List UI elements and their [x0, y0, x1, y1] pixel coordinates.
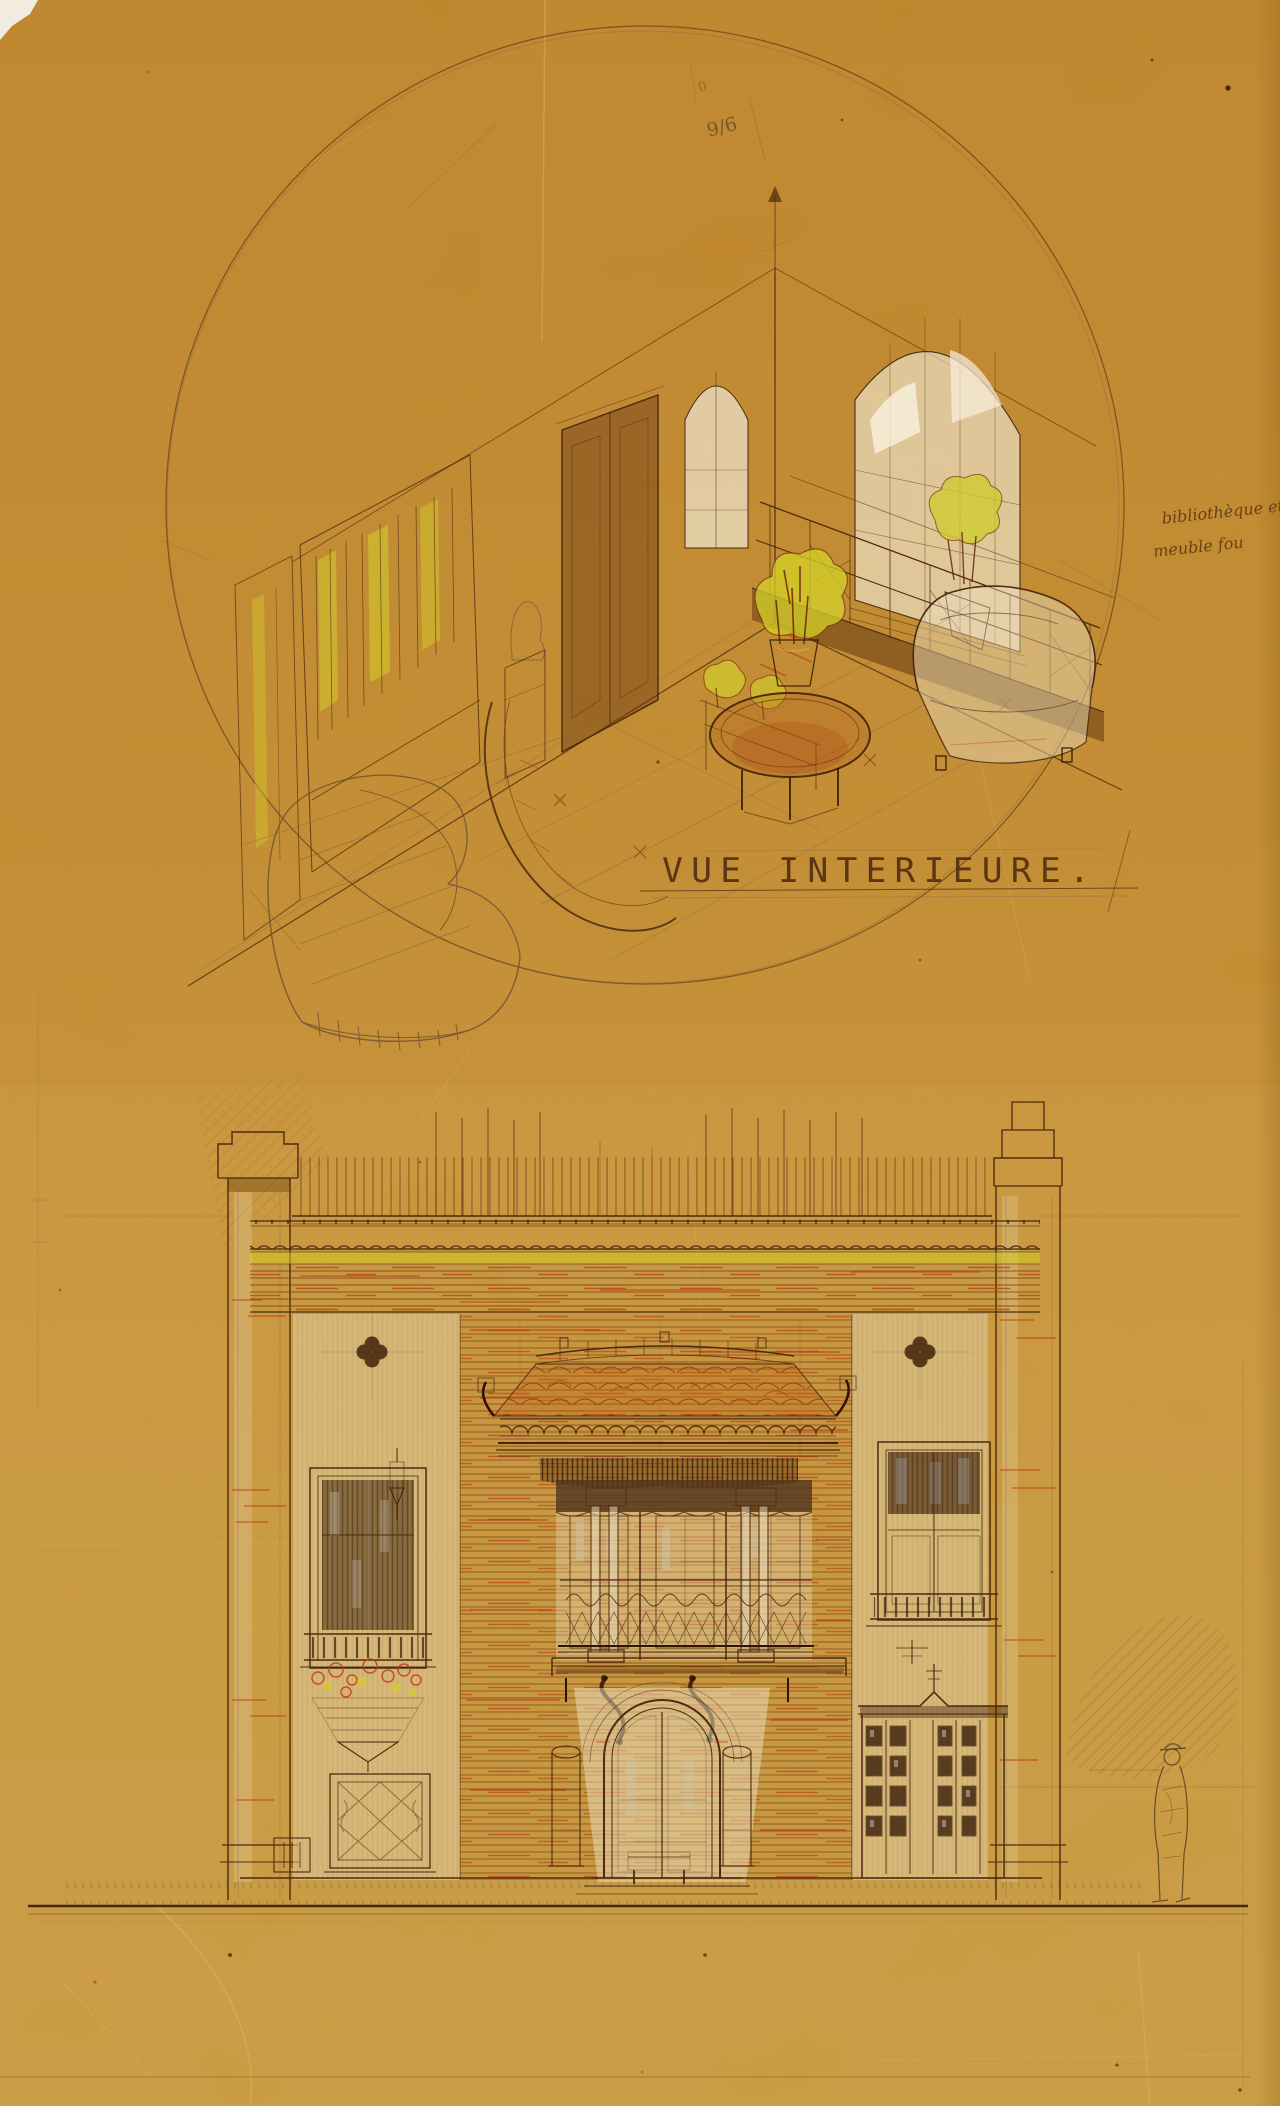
cornice-scallop-band: [250, 1220, 1040, 1250]
cornice-highlight-stripe: [250, 1252, 1040, 1264]
drawing-sheet: 0 9/6: [0, 0, 1280, 2106]
interior-caption: VUE INTERIEURE.: [662, 851, 1098, 891]
interior-double-door: [556, 386, 664, 752]
brick-frieze-band: [250, 1266, 1040, 1312]
arched-entrance: [574, 1682, 770, 1894]
